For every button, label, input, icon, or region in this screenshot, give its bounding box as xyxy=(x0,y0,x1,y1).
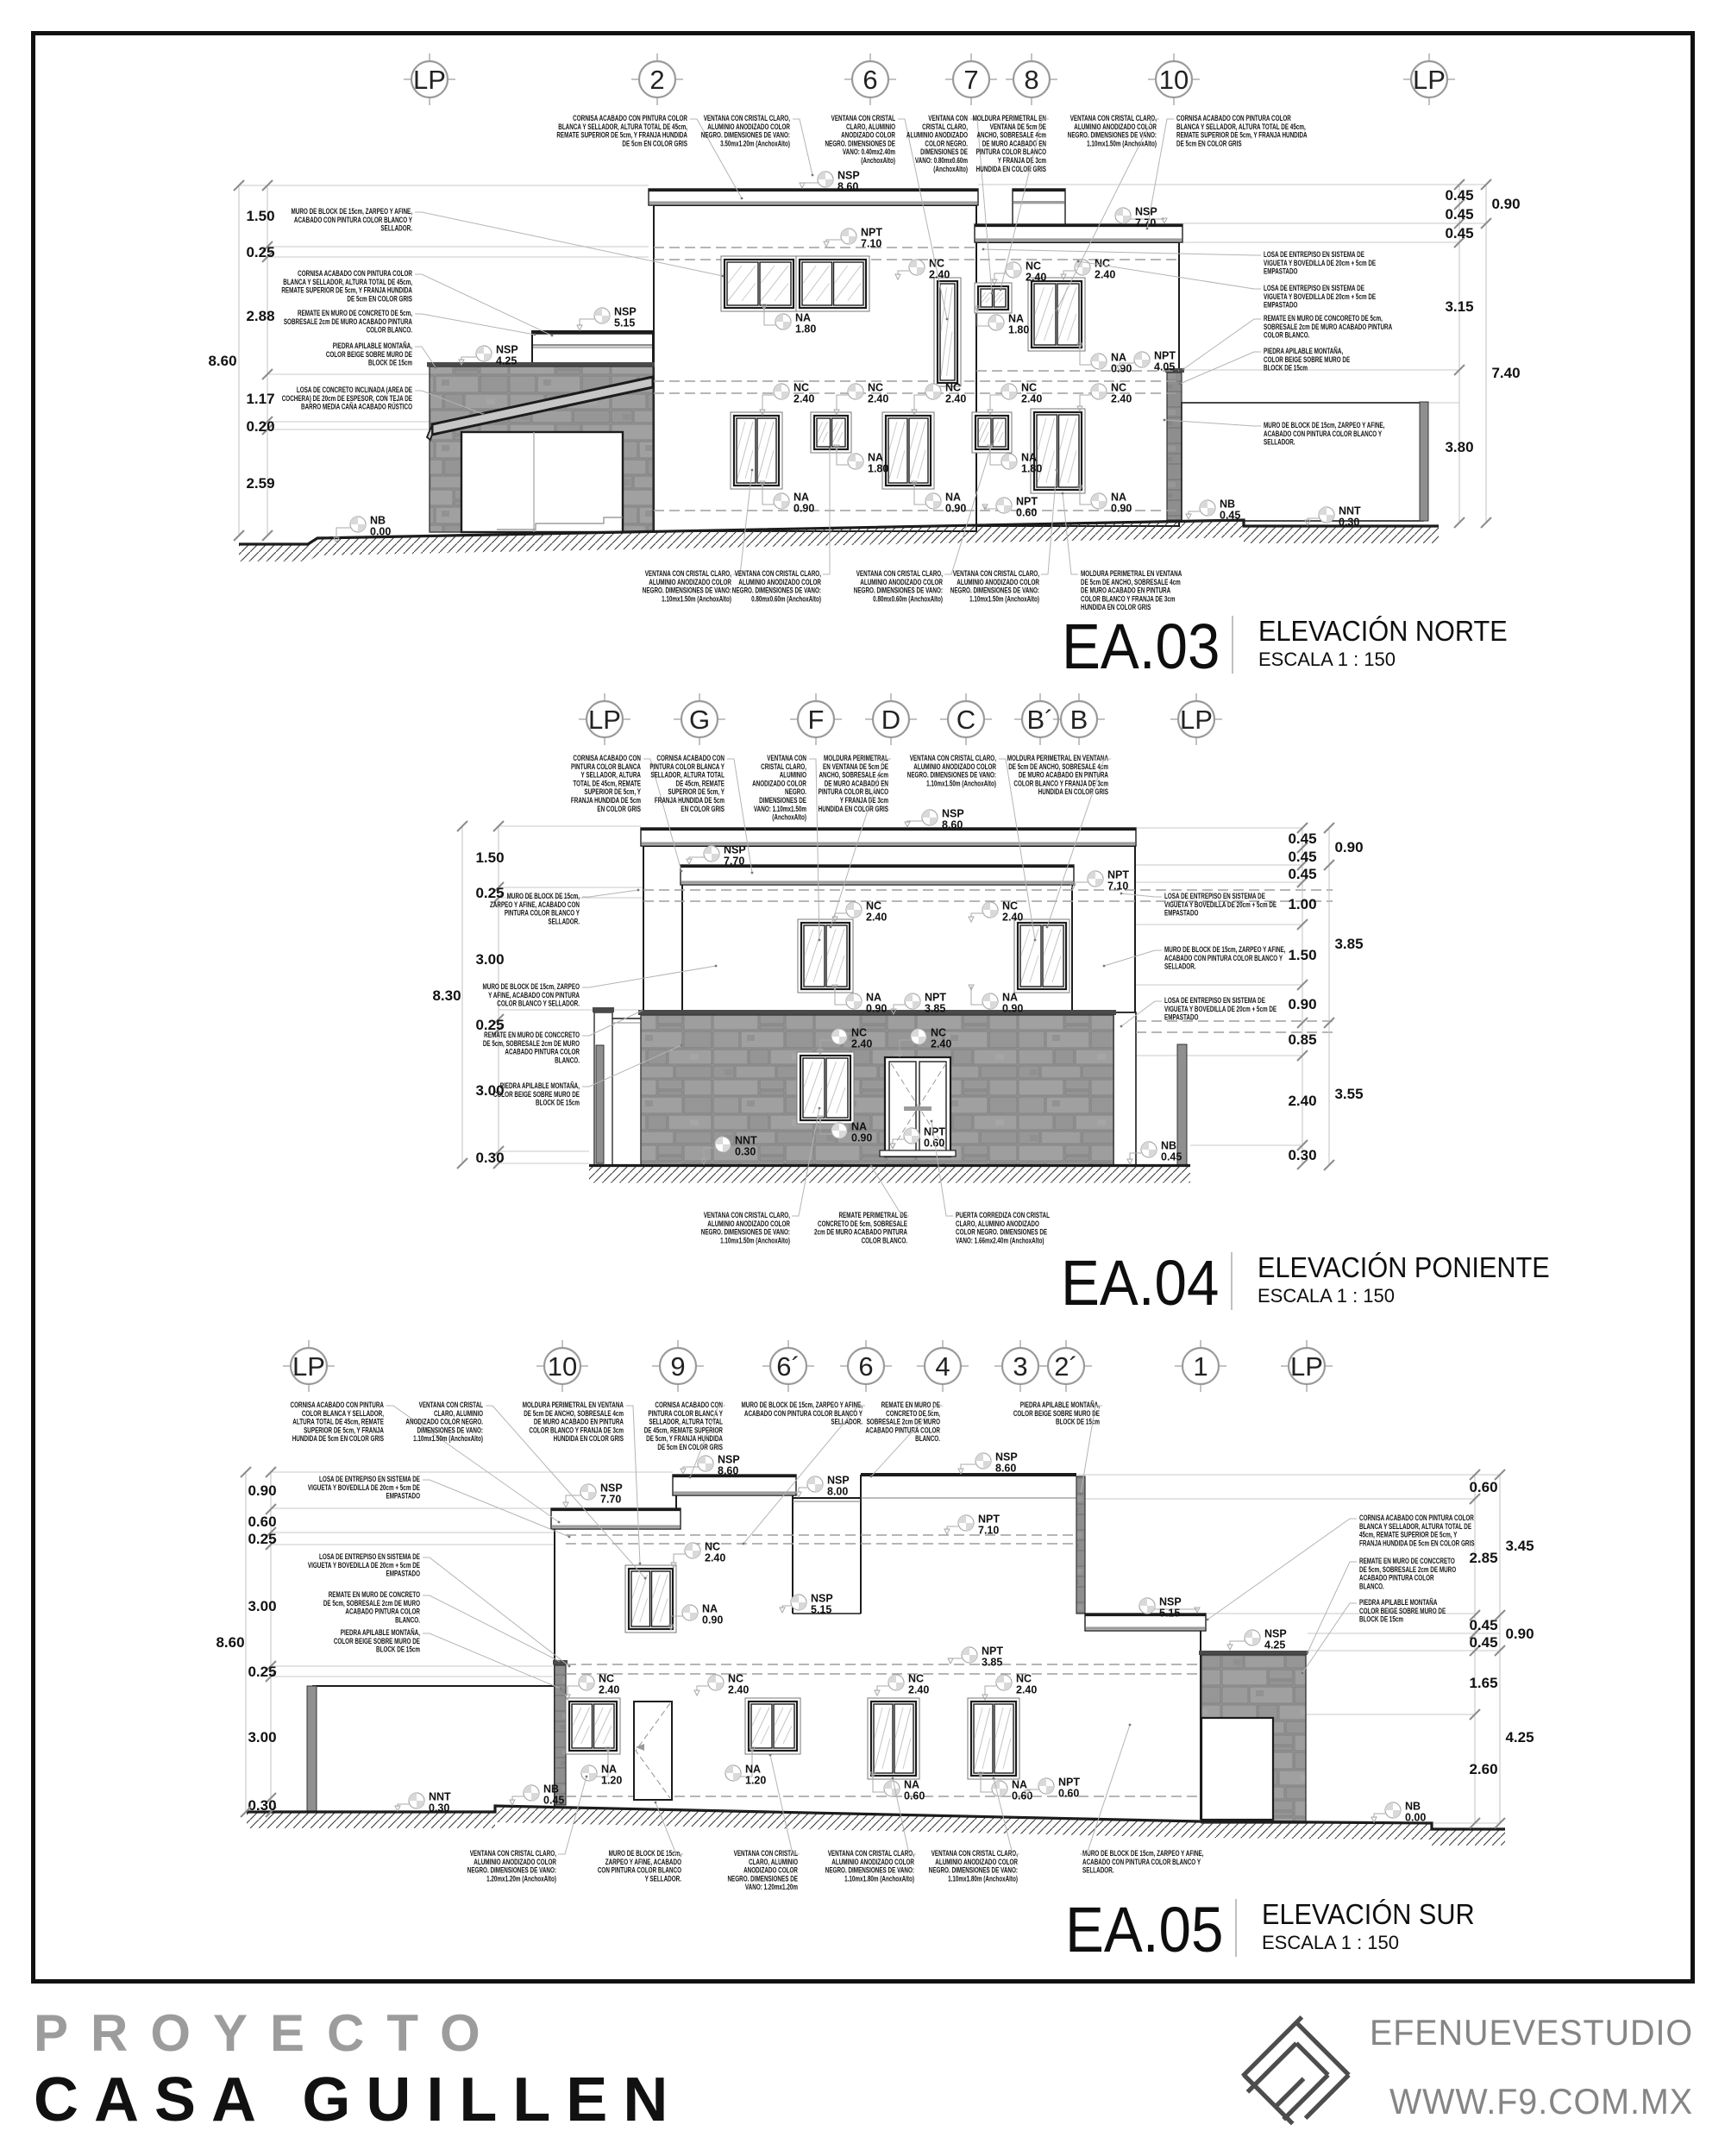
svg-text:ACABADO PINTURA COLOR: ACABADO PINTURA COLOR xyxy=(1359,1574,1434,1583)
svg-text:ELEVACIÓN SUR: ELEVACIÓN SUR xyxy=(1262,1898,1475,1930)
svg-text:MURO DE BLOCK DE 15cm, ZARPEO: MURO DE BLOCK DE 15cm, ZARPEO Y AFINE, xyxy=(741,1401,862,1409)
svg-text:NSP: NSP xyxy=(811,1593,833,1605)
svg-text:NEGRO. DIMENSIONES DE VANO:: NEGRO. DIMENSIONES DE VANO: xyxy=(907,771,996,780)
svg-text:NA: NA xyxy=(795,312,811,324)
svg-text:DE 5cm EN COLOR GRIS: DE 5cm EN COLOR GRIS xyxy=(657,1443,723,1451)
svg-text:LP: LP xyxy=(413,65,446,95)
svg-text:1.65: 1.65 xyxy=(1469,1675,1497,1691)
svg-text:8.60: 8.60 xyxy=(216,1634,244,1651)
svg-text:Y SELLADOR, ALTURA: Y SELLADOR, ALTURA xyxy=(581,771,642,780)
svg-text:1.50: 1.50 xyxy=(475,849,504,866)
svg-text:CLARO, ALUMINIO: CLARO, ALUMINIO xyxy=(434,1409,483,1418)
svg-text:HUNDIDA DE 5cm EN COLOR GRIS: HUNDIDA DE 5cm EN COLOR GRIS xyxy=(292,1434,384,1443)
svg-text:0.60: 0.60 xyxy=(248,1514,276,1530)
svg-text:0.00: 0.00 xyxy=(1405,1812,1426,1824)
svg-text:7.10: 7.10 xyxy=(1107,881,1128,893)
svg-text:2.40: 2.40 xyxy=(908,1684,929,1696)
svg-text:COLOR BLANCO Y FRANJA DE 3cm: COLOR BLANCO Y FRANJA DE 3cm xyxy=(529,1426,624,1434)
svg-text:NC: NC xyxy=(728,1673,743,1685)
svg-text:DE 5cm EN COLOR GRIS: DE 5cm EN COLOR GRIS xyxy=(622,139,687,147)
svg-text:NEGRO. DIMENSIONES DE VANO:: NEGRO. DIMENSIONES DE VANO: xyxy=(643,586,731,595)
svg-text:0.00: 0.00 xyxy=(370,526,391,538)
svg-text:0.90: 0.90 xyxy=(945,503,966,515)
svg-text:0.30: 0.30 xyxy=(1339,517,1359,529)
svg-text:PINTURA COLOR BLANCA Y: PINTURA COLOR BLANCA Y xyxy=(649,762,724,771)
svg-text:0.25: 0.25 xyxy=(248,1664,276,1680)
svg-text:NC: NC xyxy=(931,1027,946,1039)
svg-text:EA.04: EA.04 xyxy=(1061,1247,1219,1319)
svg-text:2.40: 2.40 xyxy=(705,1552,725,1564)
svg-text:1.10mx1.50m (AnchoxAlto): 1.10mx1.50m (AnchoxAlto) xyxy=(662,594,731,603)
svg-text:2.40: 2.40 xyxy=(1021,393,1042,405)
svg-text:MURO DE BLOCK DE 15cm, ZARPEO: MURO DE BLOCK DE 15cm, ZARPEO xyxy=(483,982,580,991)
svg-text:DIMENSIONES DE VANO:: DIMENSIONES DE VANO: xyxy=(417,1426,483,1434)
svg-text:BLANCA Y SELLADOR, ALTURA TOTA: BLANCA Y SELLADOR, ALTURA TOTAL DE xyxy=(1359,1522,1471,1531)
svg-text:(AnchoxAlto): (AnchoxAlto) xyxy=(861,156,895,165)
svg-text:VENTANA CON CRISTAL CLARO,: VENTANA CON CRISTAL CLARO, xyxy=(828,1849,914,1858)
svg-text:NPT: NPT xyxy=(1107,869,1129,881)
svg-text:MOLDURA PERIMETRAL EN VENTANA: MOLDURA PERIMETRAL EN VENTANA xyxy=(1007,754,1109,762)
svg-text:BARRO MEDIA CAÑA ACABADO RÚSTI: BARRO MEDIA CAÑA ACABADO RÚSTICO xyxy=(301,403,412,411)
svg-text:0.90: 0.90 xyxy=(851,1132,872,1144)
svg-text:PINTURA COLOR BLANCA Y: PINTURA COLOR BLANCA Y xyxy=(648,1409,723,1418)
svg-text:REMATE SUPERIOR DE 5cm, Y FRAN: REMATE SUPERIOR DE 5cm, Y FRANJA HUNDIDA xyxy=(1176,131,1308,140)
svg-text:0.25: 0.25 xyxy=(475,885,504,901)
svg-text:VENTANA CON CRISTAL: VENTANA CON CRISTAL xyxy=(734,1849,799,1858)
svg-text:MURO DE BLOCK DE 15cm, ZARPEO: MURO DE BLOCK DE 15cm, ZARPEO Y AFINE, xyxy=(1164,945,1286,954)
svg-text:NB: NB xyxy=(543,1783,559,1796)
svg-text:0.45: 0.45 xyxy=(1445,187,1473,204)
svg-text:0.30: 0.30 xyxy=(248,1797,276,1814)
svg-text:2.40: 2.40 xyxy=(728,1684,749,1696)
svg-text:ALUMINIO ANODIZADO COLOR: ALUMINIO ANODIZADO COLOR xyxy=(1074,122,1157,131)
svg-text:ALUMINIO ANODIZADO COLOR: ALUMINIO ANODIZADO COLOR xyxy=(935,1858,1018,1866)
svg-text:ALUMINIO ANODIZADO COLOR: ALUMINIO ANODIZADO COLOR xyxy=(707,1219,790,1228)
svg-text:NC: NC xyxy=(908,1673,924,1685)
svg-text:DE 5cm DE ANCHO, SOBRESALE 4cm: DE 5cm DE ANCHO, SOBRESALE 4cm xyxy=(1081,578,1181,586)
svg-text:COLOR BEIGE SOBRE MURO DE: COLOR BEIGE SOBRE MURO DE xyxy=(1013,1409,1100,1418)
svg-text:2.40: 2.40 xyxy=(599,1684,619,1696)
svg-text:1.10mx1.50m (AnchoxAlto): 1.10mx1.50m (AnchoxAlto) xyxy=(926,779,996,787)
svg-text:3.00: 3.00 xyxy=(475,951,504,968)
svg-text:DE 5cm DE ANCHO, SOBRESALE 4cm: DE 5cm DE ANCHO, SOBRESALE 4cm xyxy=(524,1409,624,1418)
svg-text:ESCALA 1 : 150: ESCALA 1 : 150 xyxy=(1262,1932,1399,1953)
svg-text:VIGUETA Y BOVEDILLA DE 20cm +: VIGUETA Y BOVEDILLA DE 20cm + 5cm DE xyxy=(308,1561,420,1570)
svg-text:FRANJA HUNDIDA DE 5cm: FRANJA HUNDIDA DE 5cm xyxy=(655,796,724,805)
svg-text:NSP: NSP xyxy=(724,844,746,856)
svg-text:NC: NC xyxy=(1095,258,1110,270)
svg-text:(AnchoxAlto): (AnchoxAlto) xyxy=(933,165,968,173)
svg-text:Y FRANJA DE 3cm: Y FRANJA DE 3cm xyxy=(998,156,1046,165)
svg-text:SUPERIOR DE 5cm, Y: SUPERIOR DE 5cm, Y xyxy=(584,787,641,796)
svg-text:0.60: 0.60 xyxy=(1016,507,1037,519)
svg-text:DE 5cm DE ANCHO, SOBRESALE 4cm: DE 5cm DE ANCHO, SOBRESALE 4cm xyxy=(1008,762,1108,771)
svg-text:ACABADO PINTURA COLOR: ACABADO PINTURA COLOR xyxy=(345,1608,420,1616)
svg-text:4.25: 4.25 xyxy=(1505,1729,1534,1745)
svg-text:DE MURO ACABADO EN PINTURA: DE MURO ACABADO EN PINTURA xyxy=(1019,771,1109,780)
svg-text:1: 1 xyxy=(1193,1351,1207,1382)
svg-text:NSP: NSP xyxy=(1135,206,1157,218)
svg-text:8.60: 8.60 xyxy=(718,1465,738,1477)
svg-text:NSP: NSP xyxy=(600,1482,623,1495)
svg-text:SELLADOR.: SELLADOR. xyxy=(1164,962,1196,971)
svg-text:2.40: 2.40 xyxy=(931,1038,951,1050)
svg-text:NSP: NSP xyxy=(1264,1628,1287,1640)
svg-text:NSP: NSP xyxy=(827,1475,850,1487)
svg-text:NEGRO. DIMENSIONES DE VANO:: NEGRO. DIMENSIONES DE VANO: xyxy=(825,1866,914,1875)
svg-text:0.60: 0.60 xyxy=(1469,1479,1497,1495)
svg-text:COLOR BEIGE SOBRE MURO DE: COLOR BEIGE SOBRE MURO DE xyxy=(493,1090,580,1099)
svg-text:VIGUETA Y BOVEDILLA DE 20cm +: VIGUETA Y BOVEDILLA DE 20cm + 5cm DE xyxy=(1164,1005,1276,1013)
svg-text:NEGRO.: NEGRO. xyxy=(785,787,806,796)
svg-text:8.60: 8.60 xyxy=(208,353,236,369)
svg-text:LOSA DE CONCRETO INCLINADA (AR: LOSA DE CONCRETO INCLINADA (AREA DE xyxy=(297,385,412,394)
svg-text:NPT: NPT xyxy=(982,1645,1003,1658)
svg-text:NEGRO. DIMENSIONES DE VANO:: NEGRO. DIMENSIONES DE VANO: xyxy=(854,586,943,595)
svg-text:1.10mx1.80m (AnchoxAlto): 1.10mx1.80m (AnchoxAlto) xyxy=(844,1874,914,1883)
svg-text:7.10: 7.10 xyxy=(978,1525,999,1537)
svg-text:ESCALA 1 : 150: ESCALA 1 : 150 xyxy=(1258,649,1396,670)
svg-text:0.30: 0.30 xyxy=(735,1146,756,1158)
svg-text:ANODIZADO COLOR NEGRO.: ANODIZADO COLOR NEGRO. xyxy=(405,1418,483,1426)
svg-text:ACABADO CON PINTURA COLOR BLAN: ACABADO CON PINTURA COLOR BLANCO Y xyxy=(1264,429,1382,438)
svg-text:3.50mx1.20m (AnchoxAlto): 3.50mx1.20m (AnchoxAlto) xyxy=(720,139,790,147)
svg-text:0.90: 0.90 xyxy=(866,1003,887,1015)
svg-text:EMPASTADO: EMPASTADO xyxy=(1264,267,1298,276)
svg-text:6: 6 xyxy=(858,1351,873,1382)
svg-text:NSP: NSP xyxy=(718,1454,740,1466)
svg-text:DE 5cm EN COLOR GRIS: DE 5cm EN COLOR GRIS xyxy=(1176,139,1242,147)
svg-text:0.25: 0.25 xyxy=(246,244,274,260)
svg-text:7.70: 7.70 xyxy=(724,856,744,868)
svg-text:NA: NA xyxy=(866,992,881,1004)
svg-text:0.90: 0.90 xyxy=(1334,839,1363,856)
svg-text:REMATE EN MURO DE CONCRETO: REMATE EN MURO DE CONCRETO xyxy=(329,1590,420,1599)
svg-text:NPT: NPT xyxy=(1058,1777,1080,1789)
svg-text:0.30: 0.30 xyxy=(429,1802,449,1814)
svg-text:CORNISA ACABADO CON: CORNISA ACABADO CON xyxy=(573,754,641,762)
svg-text:2.40: 2.40 xyxy=(851,1038,872,1050)
svg-text:NA: NA xyxy=(851,1121,867,1133)
svg-text:ALUMINIO ANODIZADO COLOR: ALUMINIO ANODIZADO COLOR xyxy=(957,578,1039,586)
svg-text:EFENUEVESTUDIO: EFENUEVESTUDIO xyxy=(1370,2012,1693,2053)
svg-text:4: 4 xyxy=(935,1351,950,1382)
svg-text:8.60: 8.60 xyxy=(995,1463,1016,1475)
svg-text:BLANCA Y SELLADOR, ALTURA TOTA: BLANCA Y SELLADOR, ALTURA TOTAL DE 45cm, xyxy=(558,122,687,131)
svg-text:NEGRO. DIMENSIONES DE VANO:: NEGRO. DIMENSIONES DE VANO: xyxy=(701,1228,790,1237)
svg-text:LP: LP xyxy=(588,705,621,735)
svg-text:ANODIZADO COLOR: ANODIZADO COLOR xyxy=(841,131,895,140)
svg-text:COLOR NEGRO. DIMENSIONES DE: COLOR NEGRO. DIMENSIONES DE xyxy=(956,1228,1047,1237)
svg-text:ESCALA 1 : 150: ESCALA 1 : 150 xyxy=(1258,1285,1395,1307)
svg-text:NEGRO. DIMENSIONES DE VANO:: NEGRO. DIMENSIONES DE VANO: xyxy=(701,131,790,140)
svg-text:NC: NC xyxy=(1016,1673,1032,1685)
svg-text:6´: 6´ xyxy=(776,1351,800,1382)
svg-text:0.90: 0.90 xyxy=(248,1482,276,1499)
svg-text:ALUMINIO ANODIZADO COLOR: ALUMINIO ANODIZADO COLOR xyxy=(649,578,731,586)
svg-text:10: 10 xyxy=(548,1351,577,1382)
svg-text:NNT: NNT xyxy=(429,1791,451,1803)
svg-text:LOSA DE ENTREPISO EN SISTEMA D: LOSA DE ENTREPISO EN SISTEMA DE xyxy=(319,1552,420,1561)
svg-text:SELLADOR.: SELLADOR. xyxy=(380,224,412,233)
svg-text:VIGUETA Y BOVEDILLA DE 20cm +: VIGUETA Y BOVEDILLA DE 20cm + 5cm DE xyxy=(308,1483,420,1492)
svg-text:ALUMINIO ANODIZADO COLOR: ALUMINIO ANODIZADO COLOR xyxy=(738,578,821,586)
svg-text:NC: NC xyxy=(705,1541,720,1553)
svg-text:NEGRO. DIMENSIONES DE: NEGRO. DIMENSIONES DE xyxy=(825,139,895,147)
svg-text:MOLDURA PERIMETRAL EN VENTANA: MOLDURA PERIMETRAL EN VENTANA xyxy=(1081,569,1182,578)
svg-text:COLOR BLANCA Y SELLADOR,: COLOR BLANCA Y SELLADOR, xyxy=(302,1409,384,1418)
svg-text:ALUMINIO ANODIZADO COLOR: ALUMINIO ANODIZADO COLOR xyxy=(474,1858,556,1866)
svg-text:1.00: 1.00 xyxy=(1288,896,1316,912)
svg-text:SELLADOR.: SELLADOR. xyxy=(831,1418,862,1426)
svg-text:BLANCA Y SELLADOR, ALTURA TOTA: BLANCA Y SELLADOR, ALTURA TOTAL DE 45cm, xyxy=(1176,122,1306,131)
svg-text:LP: LP xyxy=(1290,1351,1323,1382)
svg-text:COLOR NEGRO.: COLOR NEGRO. xyxy=(925,139,968,147)
svg-text:PINTURA COLOR BLANCO: PINTURA COLOR BLANCO xyxy=(819,787,888,796)
svg-text:ELEVACIÓN PONIENTE: ELEVACIÓN PONIENTE xyxy=(1258,1251,1550,1283)
svg-text:10: 10 xyxy=(1159,65,1189,95)
svg-text:45cm, REMATE SUPERIOR DE 5cm,: 45cm, REMATE SUPERIOR DE 5cm, Y xyxy=(1359,1531,1457,1539)
svg-text:DE 5cm EN COLOR GRIS: DE 5cm EN COLOR GRIS xyxy=(347,294,412,303)
svg-text:DE 5cm, SOBRESALE 2cm DE MURO: DE 5cm, SOBRESALE 2cm DE MURO xyxy=(483,1039,580,1048)
svg-text:0.45: 0.45 xyxy=(543,1795,564,1807)
svg-text:COLOR BEIGE SOBRE MURO DE: COLOR BEIGE SOBRE MURO DE xyxy=(334,1637,420,1645)
svg-text:ZARPEO Y AFINE, ACABADO CON: ZARPEO Y AFINE, ACABADO CON xyxy=(490,900,580,909)
svg-text:ALUMINIO: ALUMINIO xyxy=(780,771,806,780)
svg-text:0.90: 0.90 xyxy=(1505,1626,1534,1642)
svg-text:EMPASTADO: EMPASTADO xyxy=(1164,909,1199,918)
svg-text:NA: NA xyxy=(1111,492,1126,504)
svg-text:3.00: 3.00 xyxy=(248,1729,276,1745)
svg-text:NB: NB xyxy=(1161,1140,1176,1152)
svg-text:7.40: 7.40 xyxy=(1491,365,1520,381)
svg-text:MURO DE BLOCK DE 15cm, ZARPEO: MURO DE BLOCK DE 15cm, ZARPEO Y AFINE, xyxy=(1082,1849,1204,1858)
svg-text:DE MURO ACABADO EN: DE MURO ACABADO EN xyxy=(825,779,889,787)
svg-text:BLOCK DE 15cm: BLOCK DE 15cm xyxy=(536,1099,580,1107)
svg-text:2cm DE MURO ACABADO PINTURA: 2cm DE MURO ACABADO PINTURA xyxy=(814,1228,907,1237)
svg-text:6: 6 xyxy=(862,65,877,95)
svg-text:WWW.F9.COM.MX: WWW.F9.COM.MX xyxy=(1389,2081,1693,2122)
svg-text:EMPASTADO: EMPASTADO xyxy=(1264,301,1298,310)
svg-text:PIEDRA APILABLE MONTAÑA,: PIEDRA APILABLE MONTAÑA, xyxy=(1264,347,1343,355)
svg-text:COLOR BEIGE SOBRE MURO DE: COLOR BEIGE SOBRE MURO DE xyxy=(1359,1607,1446,1615)
svg-text:CLARO, ALUMINIO: CLARO, ALUMINIO xyxy=(846,122,895,131)
svg-text:TOTAL DE 45cm, REMATE: TOTAL DE 45cm, REMATE xyxy=(573,779,641,787)
svg-text:NC: NC xyxy=(866,900,881,912)
svg-text:VENTANA CON CRISTAL CLARO,: VENTANA CON CRISTAL CLARO, xyxy=(645,569,731,578)
svg-text:2.40: 2.40 xyxy=(929,269,950,281)
svg-text:MOLDURA PERIMETRAL: MOLDURA PERIMETRAL xyxy=(824,754,888,762)
svg-text:2.40: 2.40 xyxy=(866,912,887,924)
svg-text:REMATE PERIMETRAL DE: REMATE PERIMETRAL DE xyxy=(838,1211,907,1219)
svg-text:CORNISA ACABADO CON PINTURA: CORNISA ACABADO CON PINTURA xyxy=(291,1401,385,1409)
svg-text:NSP: NSP xyxy=(995,1451,1018,1463)
svg-text:NC: NC xyxy=(1026,260,1041,273)
svg-text:DE 45cm, REMATE SUPERIOR: DE 45cm, REMATE SUPERIOR xyxy=(644,1426,724,1434)
svg-text:PINTURA COLOR BLANCO Y: PINTURA COLOR BLANCO Y xyxy=(505,909,580,918)
svg-text:3.85: 3.85 xyxy=(1334,936,1363,952)
svg-text:1.80: 1.80 xyxy=(1021,463,1042,475)
svg-text:CLARO, ALUMINIO: CLARO, ALUMINIO xyxy=(749,1858,798,1866)
svg-text:NC: NC xyxy=(929,258,944,270)
svg-text:MURO DE BLOCK DE 15cm,: MURO DE BLOCK DE 15cm, xyxy=(609,1849,681,1858)
svg-text:3.45: 3.45 xyxy=(1505,1538,1534,1554)
svg-text:DE 45cm, REMATE: DE 45cm, REMATE xyxy=(676,779,724,787)
svg-text:VIGUETA Y BOVEDILLA DE 20cm +: VIGUETA Y BOVEDILLA DE 20cm + 5cm DE xyxy=(1264,292,1376,301)
svg-text:DE MURO ACABADO EN PINTURA: DE MURO ACABADO EN PINTURA xyxy=(534,1418,624,1426)
svg-text:PINTURA COLOR BLANCO: PINTURA COLOR BLANCO xyxy=(976,147,1046,156)
svg-text:4.25: 4.25 xyxy=(1264,1639,1285,1651)
svg-text:2.88: 2.88 xyxy=(246,308,274,324)
svg-text:SOBRESALE 2cm DE MURO ACABADO: SOBRESALE 2cm DE MURO ACABADO PINTURA xyxy=(284,317,413,326)
svg-text:NA: NA xyxy=(1002,992,1018,1004)
svg-text:ALUMINIO ANODIZADO COLOR: ALUMINIO ANODIZADO COLOR xyxy=(913,762,996,771)
svg-text:2.40: 2.40 xyxy=(1002,912,1023,924)
svg-text:BLOCK DE 15cm: BLOCK DE 15cm xyxy=(1264,364,1308,373)
svg-text:ALUMINIO ANODIZADO COLOR: ALUMINIO ANODIZADO COLOR xyxy=(707,122,790,131)
svg-text:5.15: 5.15 xyxy=(614,317,635,329)
svg-text:NPT: NPT xyxy=(978,1514,1000,1526)
svg-text:Y AFINE, ACABADO CON PINTURA: Y AFINE, ACABADO CON PINTURA xyxy=(488,991,580,1000)
svg-text:EMPASTADO: EMPASTADO xyxy=(386,1570,421,1578)
svg-text:0.90: 0.90 xyxy=(793,503,814,515)
svg-text:4.25: 4.25 xyxy=(496,355,517,367)
svg-text:NB: NB xyxy=(1220,498,1235,511)
svg-text:VENTANA CON CRISTAL CLARO,: VENTANA CON CRISTAL CLARO, xyxy=(704,114,790,122)
svg-text:3.55: 3.55 xyxy=(1334,1086,1363,1102)
svg-text:REMATE EN MURO DE CONCCRETO: REMATE EN MURO DE CONCCRETO xyxy=(1359,1557,1455,1565)
svg-text:PIEDRA APILABLE MONTAÑA,: PIEDRA APILABLE MONTAÑA, xyxy=(500,1081,580,1090)
svg-text:DE 5cm, SOBRESALE 2cm DE MURO: DE 5cm, SOBRESALE 2cm DE MURO xyxy=(323,1599,420,1608)
svg-text:ALUMINIO ANODIZADO COLOR: ALUMINIO ANODIZADO COLOR xyxy=(831,1858,914,1866)
svg-text:DE 5cm, SOBRESALE 2cm DE MURO: DE 5cm, SOBRESALE 2cm DE MURO xyxy=(1359,1565,1456,1574)
svg-text:VENTANA CON CRISTAL CLARO,: VENTANA CON CRISTAL CLARO, xyxy=(470,1849,556,1858)
svg-text:SUPERIOR DE 5cm, Y: SUPERIOR DE 5cm, Y xyxy=(668,787,724,796)
svg-text:VANO: 0.40mx2.40m: VANO: 0.40mx2.40m xyxy=(843,147,895,156)
svg-text:VENTANA CON: VENTANA CON xyxy=(767,754,806,762)
svg-text:5.15: 5.15 xyxy=(811,1604,831,1616)
svg-text:1.20: 1.20 xyxy=(745,1775,766,1787)
svg-text:EN VENTANA DE 5cm DE: EN VENTANA DE 5cm DE xyxy=(823,762,888,771)
svg-text:CRISTAL CLARO,: CRISTAL CLARO, xyxy=(922,122,968,131)
svg-text:2.40: 2.40 xyxy=(1095,269,1115,281)
svg-text:EMPASTADO: EMPASTADO xyxy=(386,1492,421,1501)
svg-text:LP: LP xyxy=(1413,65,1446,95)
svg-text:COLOR BLANCO Y FRANJA DE 3cm: COLOR BLANCO Y FRANJA DE 3cm xyxy=(1081,594,1176,603)
svg-text:0.60: 0.60 xyxy=(1058,1788,1079,1800)
svg-text:BLOCK DE 15cm: BLOCK DE 15cm xyxy=(1359,1615,1403,1624)
svg-text:PIEDRA APILABLE MONTAÑA,: PIEDRA APILABLE MONTAÑA, xyxy=(333,342,412,350)
svg-text:NPT: NPT xyxy=(1016,496,1038,508)
svg-text:LOSA DE ENTREPISO EN SISTEMA D: LOSA DE ENTREPISO EN SISTEMA DE xyxy=(1264,250,1364,259)
svg-text:VIGUETA Y BOVEDILLA DE 20cm +: VIGUETA Y BOVEDILLA DE 20cm + 5cm DE xyxy=(1164,900,1276,909)
svg-text:NA: NA xyxy=(904,1779,919,1791)
svg-text:CASA GUILLEN: CASA GUILLEN xyxy=(34,2065,683,2134)
svg-text:NSP: NSP xyxy=(614,306,637,318)
svg-text:2.85: 2.85 xyxy=(1469,1550,1497,1566)
svg-text:NC: NC xyxy=(1002,900,1018,912)
svg-text:ANODIZADO COLOR: ANODIZADO COLOR xyxy=(743,1866,798,1875)
svg-text:VENTANA CON CRISTAL CLARO,: VENTANA CON CRISTAL CLARO, xyxy=(910,754,996,762)
svg-text:PROYECTO: PROYECTO xyxy=(34,2004,503,2062)
svg-text:HUNDIDA EN COLOR GRIS: HUNDIDA EN COLOR GRIS xyxy=(554,1434,624,1443)
svg-text:VANO: 1.10mx1.50m: VANO: 1.10mx1.50m xyxy=(754,805,806,813)
svg-text:NPT: NPT xyxy=(861,227,882,239)
svg-text:SOBRESALE 2cm DE MURO ACABADO: SOBRESALE 2cm DE MURO ACABADO PINTURA xyxy=(1264,323,1393,331)
svg-text:SOBRESALE 2cm DE MURO: SOBRESALE 2cm DE MURO xyxy=(867,1418,940,1426)
svg-text:3.15: 3.15 xyxy=(1445,298,1473,315)
svg-text:0.45: 0.45 xyxy=(1445,225,1473,241)
svg-text:VENTANA CON: VENTANA CON xyxy=(928,114,968,122)
svg-text:CORNISA ACABADO CON: CORNISA ACABADO CON xyxy=(655,1401,723,1409)
svg-text:REMATE EN MURO DE CONCRETO DE: REMATE EN MURO DE CONCRETO DE 5cm, xyxy=(298,309,412,317)
svg-text:COLOR BEIGE SOBRE MURO DE: COLOR BEIGE SOBRE MURO DE xyxy=(1264,355,1350,364)
svg-text:0.60: 0.60 xyxy=(904,1790,925,1802)
svg-text:SELLADOR.: SELLADOR. xyxy=(1082,1866,1114,1875)
svg-text:VANO: 1.66mx2.40m (AnchoxAlto): VANO: 1.66mx2.40m (AnchoxAlto) xyxy=(956,1236,1044,1244)
svg-text:2.40: 2.40 xyxy=(868,393,888,405)
svg-text:NA: NA xyxy=(601,1764,617,1776)
svg-text:NC: NC xyxy=(945,382,961,394)
svg-text:LOSA DE ENTREPISO EN SISTEMA D: LOSA DE ENTREPISO EN SISTEMA DE xyxy=(1164,892,1265,900)
svg-text:G: G xyxy=(689,705,710,735)
svg-text:COLOR BLANCO.: COLOR BLANCO. xyxy=(1264,331,1309,340)
svg-text:NPT: NPT xyxy=(924,1126,945,1138)
svg-text:ELEVACIÓN NORTE: ELEVACIÓN NORTE xyxy=(1258,615,1508,647)
svg-text:VENTANA CON CRISTAL CLARO,: VENTANA CON CRISTAL CLARO, xyxy=(735,569,821,578)
svg-text:NA: NA xyxy=(1021,452,1037,464)
svg-text:REMATE EN MURO DE CONCCRETO: REMATE EN MURO DE CONCCRETO xyxy=(484,1031,580,1039)
svg-text:NC: NC xyxy=(851,1027,867,1039)
svg-text:BLOCK DE 15cm: BLOCK DE 15cm xyxy=(368,359,412,367)
svg-text:NEGRO. DIMENSIONES DE VANO:: NEGRO. DIMENSIONES DE VANO: xyxy=(950,586,1039,595)
svg-text:NA: NA xyxy=(1111,352,1126,364)
svg-text:NA: NA xyxy=(1008,313,1024,325)
svg-text:MOLDURA PERIMETRAL EN: MOLDURA PERIMETRAL EN xyxy=(973,114,1047,122)
svg-text:CORNISA ACABADO CON: CORNISA ACABADO CON xyxy=(656,754,724,762)
svg-text:NA: NA xyxy=(945,492,961,504)
svg-text:CON PINTURA COLOR BLANCO: CON PINTURA COLOR BLANCO xyxy=(598,1866,681,1875)
svg-text:NA: NA xyxy=(702,1603,718,1615)
svg-text:0.45: 0.45 xyxy=(1469,1617,1497,1633)
svg-text:LP: LP xyxy=(292,1351,325,1382)
svg-text:MURO DE BLOCK DE 15cm,: MURO DE BLOCK DE 15cm, xyxy=(507,892,580,900)
svg-text:7: 7 xyxy=(963,65,978,95)
svg-text:0.20: 0.20 xyxy=(246,418,274,435)
svg-text:ACABADO CON PINTURA COLOR BLAN: ACABADO CON PINTURA COLOR BLANCO Y xyxy=(1082,1858,1201,1866)
svg-text:NA: NA xyxy=(1012,1779,1027,1791)
svg-text:SELLADOR.: SELLADOR. xyxy=(1264,438,1295,447)
svg-text:1.10mx1.50m (AnchoxAlto): 1.10mx1.50m (AnchoxAlto) xyxy=(413,1434,483,1443)
svg-text:COLOR BEIGE SOBRE MURO DE: COLOR BEIGE SOBRE MURO DE xyxy=(326,350,412,359)
svg-text:1.20: 1.20 xyxy=(601,1775,622,1787)
svg-text:VENTANA DE 5cm DE: VENTANA DE 5cm DE xyxy=(990,122,1046,131)
svg-text:BLANCO.: BLANCO. xyxy=(915,1434,940,1443)
svg-text:LOSA DE ENTREPISO EN SISTEMA D: LOSA DE ENTREPISO EN SISTEMA DE xyxy=(1264,284,1364,292)
svg-text:EMPASTADO: EMPASTADO xyxy=(1164,1013,1199,1022)
svg-text:F: F xyxy=(808,705,825,735)
svg-text:C: C xyxy=(957,705,975,735)
svg-text:0.90: 0.90 xyxy=(702,1614,723,1626)
svg-text:1.10mx1.50m (AnchoxAlto): 1.10mx1.50m (AnchoxAlto) xyxy=(720,1236,790,1244)
svg-text:8.00: 8.00 xyxy=(827,1486,848,1498)
svg-text:0.45: 0.45 xyxy=(1288,866,1316,882)
svg-text:5.15: 5.15 xyxy=(1159,1608,1180,1620)
svg-text:0.45: 0.45 xyxy=(1220,510,1240,522)
svg-text:HUNDIDA EN COLOR GRIS: HUNDIDA EN COLOR GRIS xyxy=(819,805,888,813)
svg-text:ACABADO CON PINTURA COLOR BLAN: ACABADO CON PINTURA COLOR BLANCO Y xyxy=(1164,954,1283,962)
svg-text:FRANJA HUNDIDA DE 5cm EN COLOR: FRANJA HUNDIDA DE 5cm EN COLOR GRIS xyxy=(1359,1539,1474,1547)
